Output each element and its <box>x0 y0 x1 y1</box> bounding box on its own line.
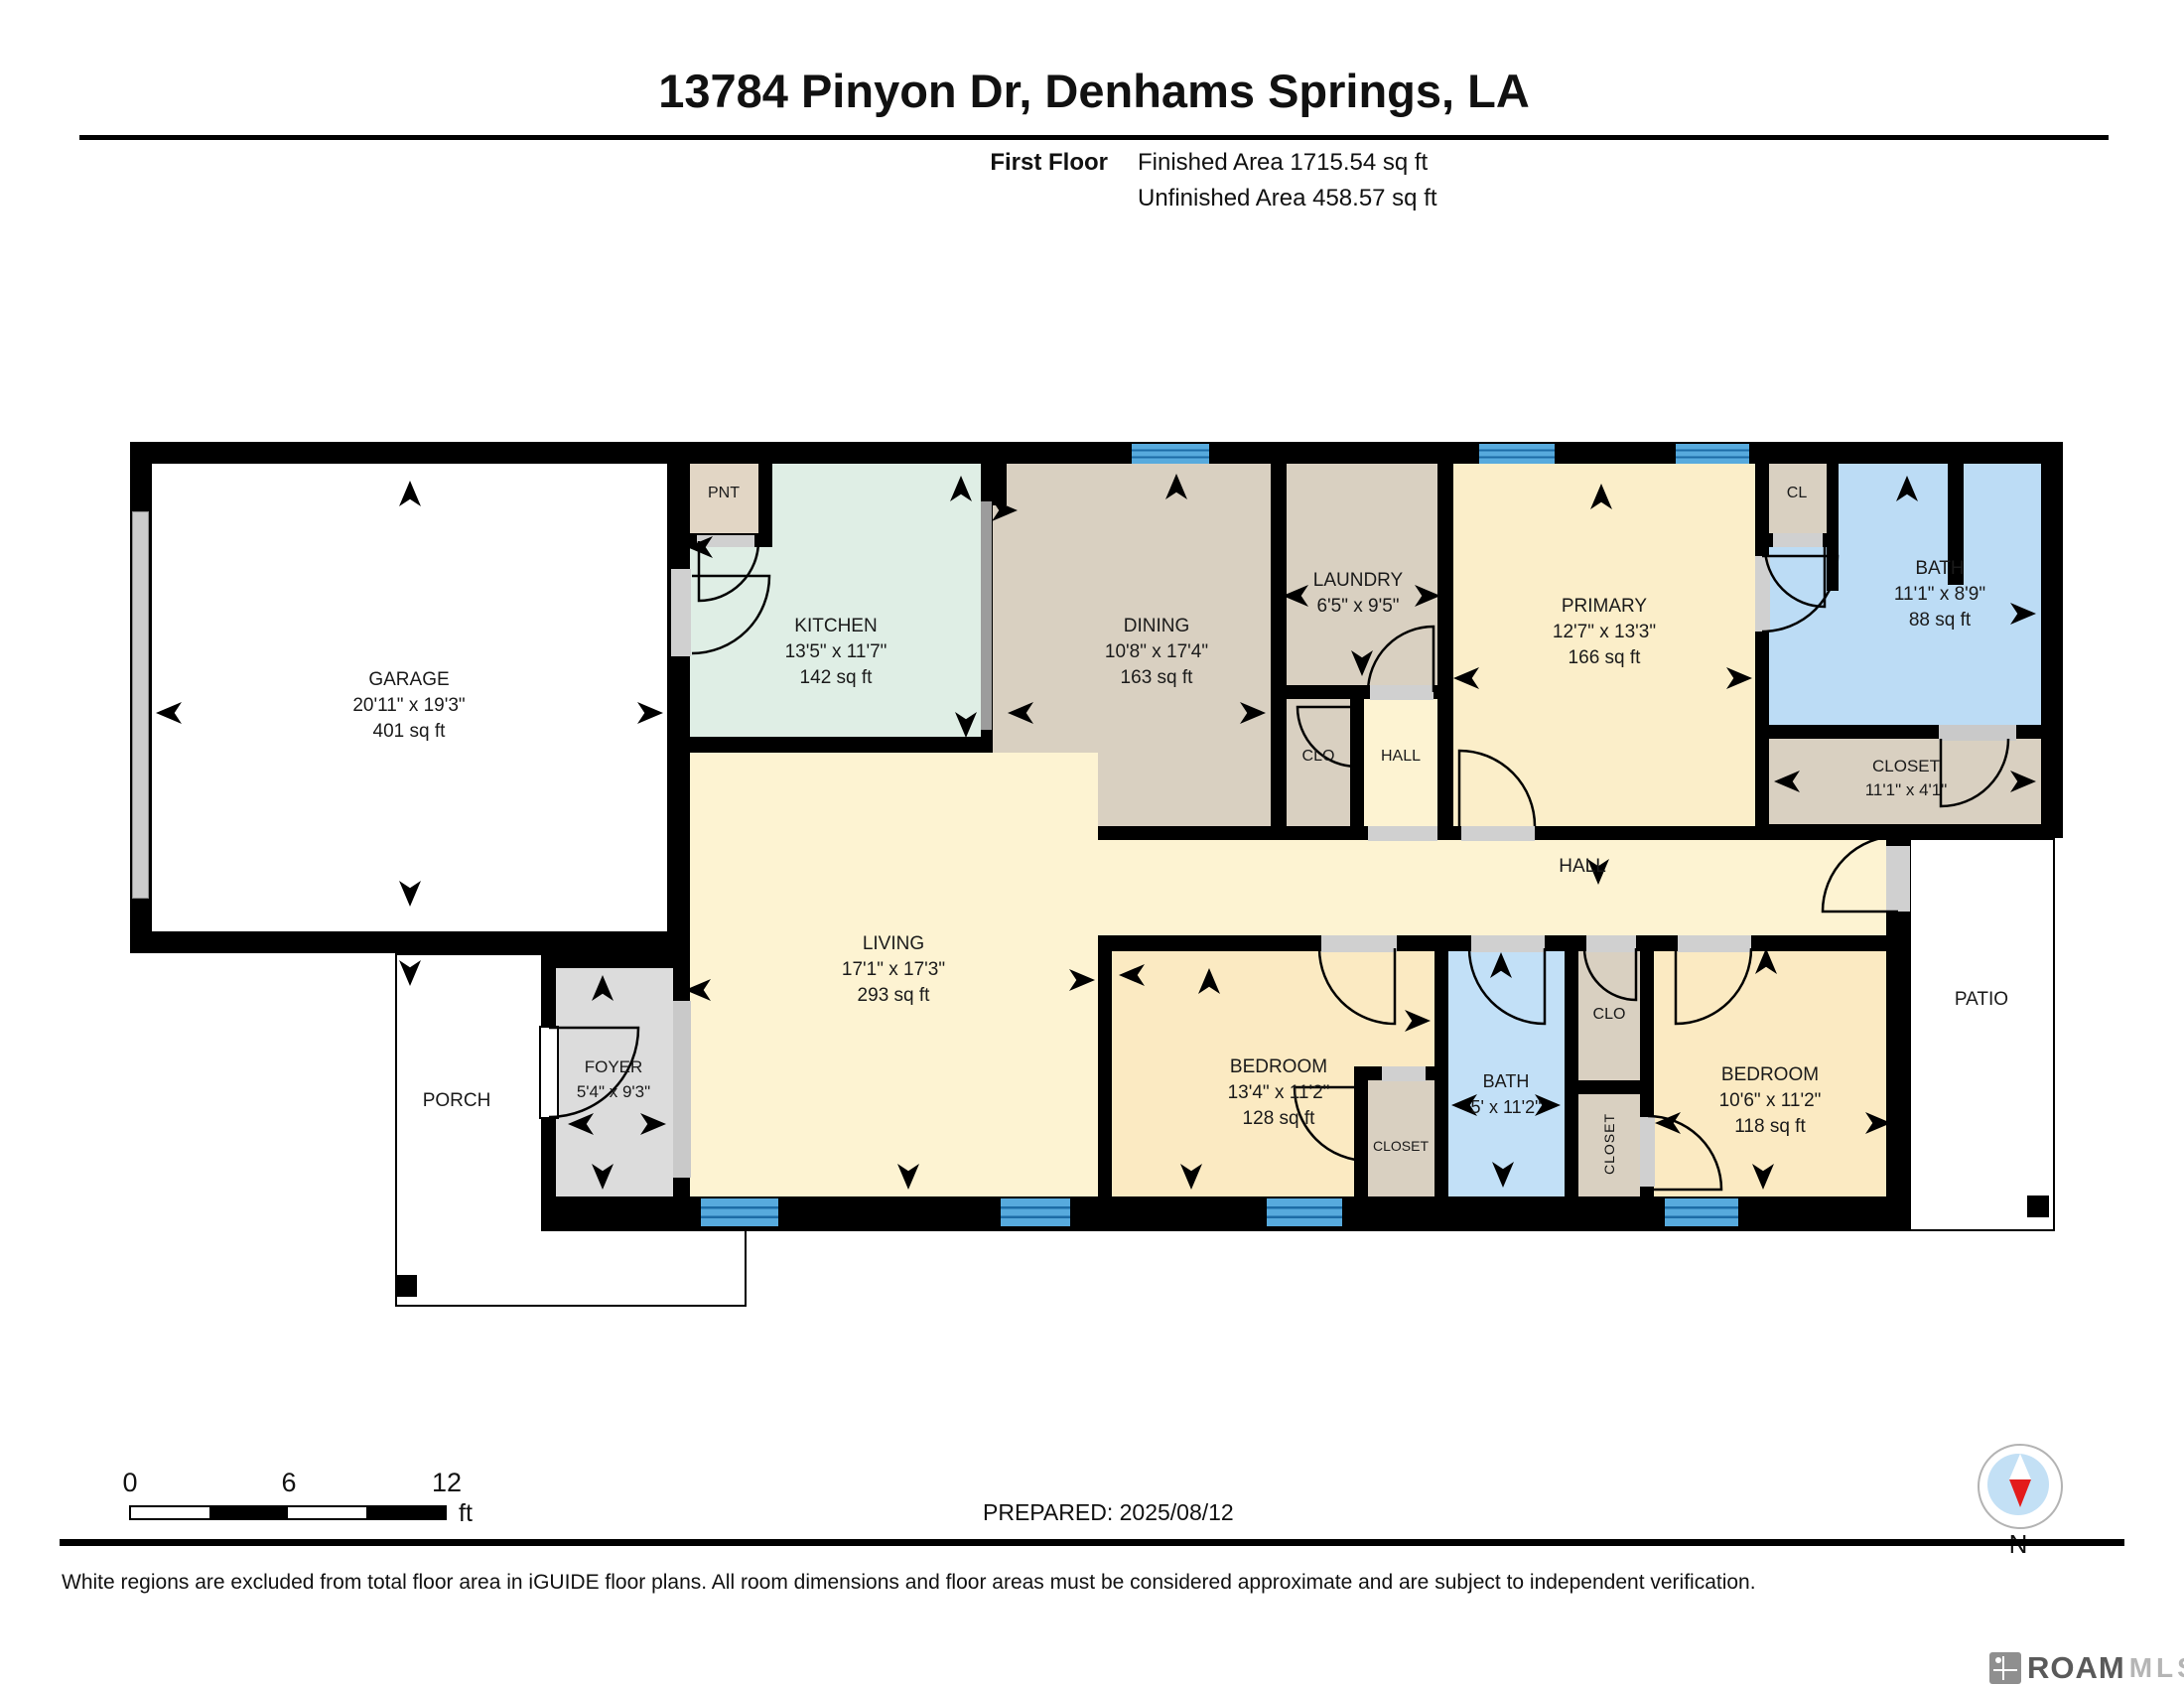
room-label-dining: DINING 10'8" x 17'4" 163 sq ft <box>1105 614 1208 691</box>
patio-post <box>2027 1196 2049 1217</box>
room-name: KITCHEN <box>785 614 887 639</box>
room-name: DINING <box>1105 614 1208 639</box>
room-dims: 20'11" x 19'3" <box>352 693 465 719</box>
window-marker <box>1001 1198 1070 1226</box>
door-opening <box>1640 1117 1655 1187</box>
window-marker <box>1676 444 1749 464</box>
room-dims: 13'4" x 11'2" <box>1228 1080 1330 1106</box>
garage-door <box>132 511 149 899</box>
room-area: 293 sq ft <box>842 983 945 1009</box>
room-label-cl: CL <box>1787 484 1807 503</box>
door-opening <box>1886 846 1910 912</box>
room-name: BEDROOM <box>1228 1055 1330 1080</box>
room-label-hall: HALL <box>1559 854 1606 880</box>
door-opening <box>1321 935 1397 952</box>
room-label-clo-bottom: CLO <box>1593 1005 1626 1025</box>
room-name: PNT <box>708 484 740 503</box>
room-name: BATH <box>1894 556 1985 582</box>
scale-segment <box>288 1507 366 1518</box>
room-label-laundry: LAUNDRY 6'5" x 9'5" <box>1313 568 1403 620</box>
door-opening <box>1773 533 1823 547</box>
wall-segment <box>991 464 1007 505</box>
room-label-living: LIVING 17'1" x 17'3" 293 sq ft <box>842 931 945 1009</box>
door-opening <box>1368 826 1437 841</box>
room-name: LAUNDRY <box>1313 568 1403 594</box>
room-area: 142 sq ft <box>785 665 887 691</box>
room-dims: 5' x 11'2" <box>1471 1094 1542 1120</box>
door-opening <box>1382 1066 1426 1081</box>
room-label-closet-bottom: CLOSET <box>1601 1113 1617 1175</box>
compass-icon <box>1978 1444 2063 1529</box>
room-dims: 17'1" x 17'3" <box>842 957 945 983</box>
scale-unit: ft <box>459 1499 473 1528</box>
room-area: 118 sq ft <box>1719 1114 1822 1140</box>
room-area: 166 sq ft <box>1553 645 1656 671</box>
logo-roam-text: ROAM <box>2027 1650 2125 1686</box>
finished-area: Finished Area 1715.54 sq ft <box>1138 149 1428 177</box>
window-marker <box>1479 444 1555 464</box>
sliding-door <box>1939 725 2016 741</box>
floor-plan-page: 13784 Pinyon Dr, Denhams Springs, LA Fir… <box>0 0 2184 1688</box>
patio-outline <box>1909 838 2055 1231</box>
room-name: LIVING <box>842 931 945 957</box>
roam-mls-logo: ROAM MLS <box>1989 1650 2184 1686</box>
room-dims: 10'8" x 17'4" <box>1105 639 1208 665</box>
door-opening <box>1370 685 1433 700</box>
scale-bar <box>129 1505 447 1520</box>
room-area: 163 sq ft <box>1105 665 1208 691</box>
window-marker <box>1665 1198 1738 1226</box>
door-opening <box>1678 935 1751 952</box>
room-name: PORCH <box>423 1088 491 1114</box>
room-name: HALL <box>1381 747 1421 767</box>
room-dims: 5'4" x 9'3" <box>577 1079 650 1104</box>
room-name: CL <box>1787 484 1807 503</box>
room-area: 401 sq ft <box>352 719 465 745</box>
footer-note: White regions are excluded from total fl… <box>62 1571 1756 1595</box>
front-door <box>539 1026 559 1119</box>
room-name: BEDROOM <box>1719 1062 1822 1088</box>
room-label-hall-top: HALL <box>1381 747 1421 767</box>
room-dims: 10'6" x 11'2" <box>1719 1088 1822 1114</box>
scale-end: 12 <box>432 1468 462 1498</box>
window-marker <box>1132 444 1209 464</box>
room-dims: 12'7" x 13'3" <box>1553 620 1656 645</box>
porch-post <box>395 1275 417 1297</box>
floor-label: First Floor <box>990 149 1108 177</box>
room-label-bath-primary: BATH 11'1" x 8'9" 88 sq ft <box>1894 556 1985 633</box>
room-dims: 6'5" x 9'5" <box>1313 594 1403 620</box>
scale-mid: 6 <box>281 1468 296 1498</box>
room-label-pnt: PNT <box>708 484 740 503</box>
door-opening <box>1755 556 1770 632</box>
door-opening <box>1461 826 1535 841</box>
unfinished-area: Unfinished Area 458.57 sq ft <box>1138 185 1437 212</box>
room-bath-primary-nook <box>1769 547 1827 725</box>
prepared-date: PREPARED: 2025/08/12 <box>983 1499 1234 1526</box>
title-divider <box>79 135 2109 140</box>
window-marker <box>1267 1198 1342 1226</box>
room-name: GARAGE <box>352 667 465 693</box>
room-dims: 13'5" x 11'7" <box>785 639 887 665</box>
room-name: CLOSET <box>1601 1113 1617 1175</box>
room-bath-primary-nook <box>1827 591 1839 725</box>
door-opening <box>1586 935 1636 952</box>
window-marker <box>701 1198 778 1226</box>
map-icon <box>1989 1652 2021 1684</box>
room-name: CLO <box>1593 1005 1626 1025</box>
footer-divider <box>60 1539 2124 1546</box>
room-name: CLOSET <box>1373 1138 1429 1155</box>
room-name: HALL <box>1559 854 1606 880</box>
scale-segment <box>131 1507 209 1518</box>
room-label-closet-primary: CLOSET 11'1" x 4'1" <box>1865 755 1948 802</box>
kitchen-dining-divider <box>981 501 992 730</box>
room-label-closet-bedroom-left: CLOSET <box>1373 1138 1429 1155</box>
room-label-kitchen: KITCHEN 13'5" x 11'7" 142 sq ft <box>785 614 887 691</box>
logo-mls-text: MLS <box>2129 1652 2184 1684</box>
room-label-porch: PORCH <box>423 1088 491 1114</box>
room-name: CLOSET <box>1865 755 1948 778</box>
room-name: FOYER <box>577 1055 650 1079</box>
compass-needle-south <box>2009 1454 2031 1479</box>
door-opening <box>1471 935 1545 952</box>
room-area: 128 sq ft <box>1228 1106 1330 1132</box>
room-closet-bedroom-left <box>1354 1066 1434 1196</box>
room-label-bedroom-left: BEDROOM 13'4" x 11'2" 128 sq ft <box>1228 1055 1330 1132</box>
room-name: CLO <box>1302 747 1335 767</box>
scale-segment <box>209 1507 288 1518</box>
room-name: BATH <box>1471 1068 1542 1094</box>
page-title: 13784 Pinyon Dr, Denhams Springs, LA <box>658 64 1530 118</box>
room-label-primary: PRIMARY 12'7" x 13'3" 166 sq ft <box>1553 594 1656 671</box>
scale-start: 0 <box>122 1468 137 1498</box>
pin-icon <box>1995 1657 2001 1663</box>
room-dims: 11'1" x 8'9" <box>1894 582 1985 608</box>
room-label-patio: PATIO <box>1955 987 2008 1013</box>
room-label-bedroom-right: BEDROOM 10'6" x 11'2" 118 sq ft <box>1719 1062 1822 1140</box>
room-label-clo-top: CLO <box>1302 747 1335 767</box>
door-opening <box>671 569 691 656</box>
scale-segment <box>366 1507 445 1518</box>
room-label-foyer: FOYER 5'4" x 9'3" <box>577 1055 650 1104</box>
room-name: PRIMARY <box>1553 594 1656 620</box>
room-name: PATIO <box>1955 987 2008 1013</box>
room-dims: 11'1" x 4'1" <box>1865 778 1948 802</box>
room-label-garage: GARAGE 20'11" x 19'3" 401 sq ft <box>352 667 465 745</box>
foyer-living-opening <box>673 1001 691 1178</box>
compass-needle-north <box>2009 1479 2031 1507</box>
room-area: 88 sq ft <box>1894 608 1985 633</box>
room-label-bath-hall: BATH 5' x 11'2" <box>1471 1068 1542 1120</box>
